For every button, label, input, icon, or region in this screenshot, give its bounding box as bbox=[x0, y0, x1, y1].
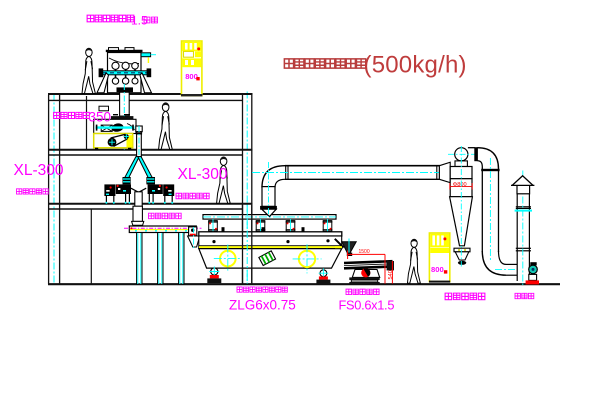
svg-text:FS0.6x1.5: FS0.6x1.5 bbox=[339, 298, 395, 313]
svg-text:350: 350 bbox=[89, 110, 112, 125]
svg-text:800: 800 bbox=[185, 72, 198, 81]
svg-text:540: 540 bbox=[388, 270, 394, 279]
svg-text:Φ800: Φ800 bbox=[453, 182, 467, 188]
svg-text:1500: 1500 bbox=[359, 249, 370, 255]
svg-text:800: 800 bbox=[431, 265, 444, 274]
svg-text:(500kg/h): (500kg/h) bbox=[364, 52, 467, 79]
svg-text:XL-300: XL-300 bbox=[14, 162, 64, 179]
svg-text:1.5: 1.5 bbox=[131, 14, 148, 28]
svg-text:XL-300: XL-300 bbox=[178, 166, 228, 183]
svg-text:ZLG6x0.75: ZLG6x0.75 bbox=[229, 298, 296, 313]
